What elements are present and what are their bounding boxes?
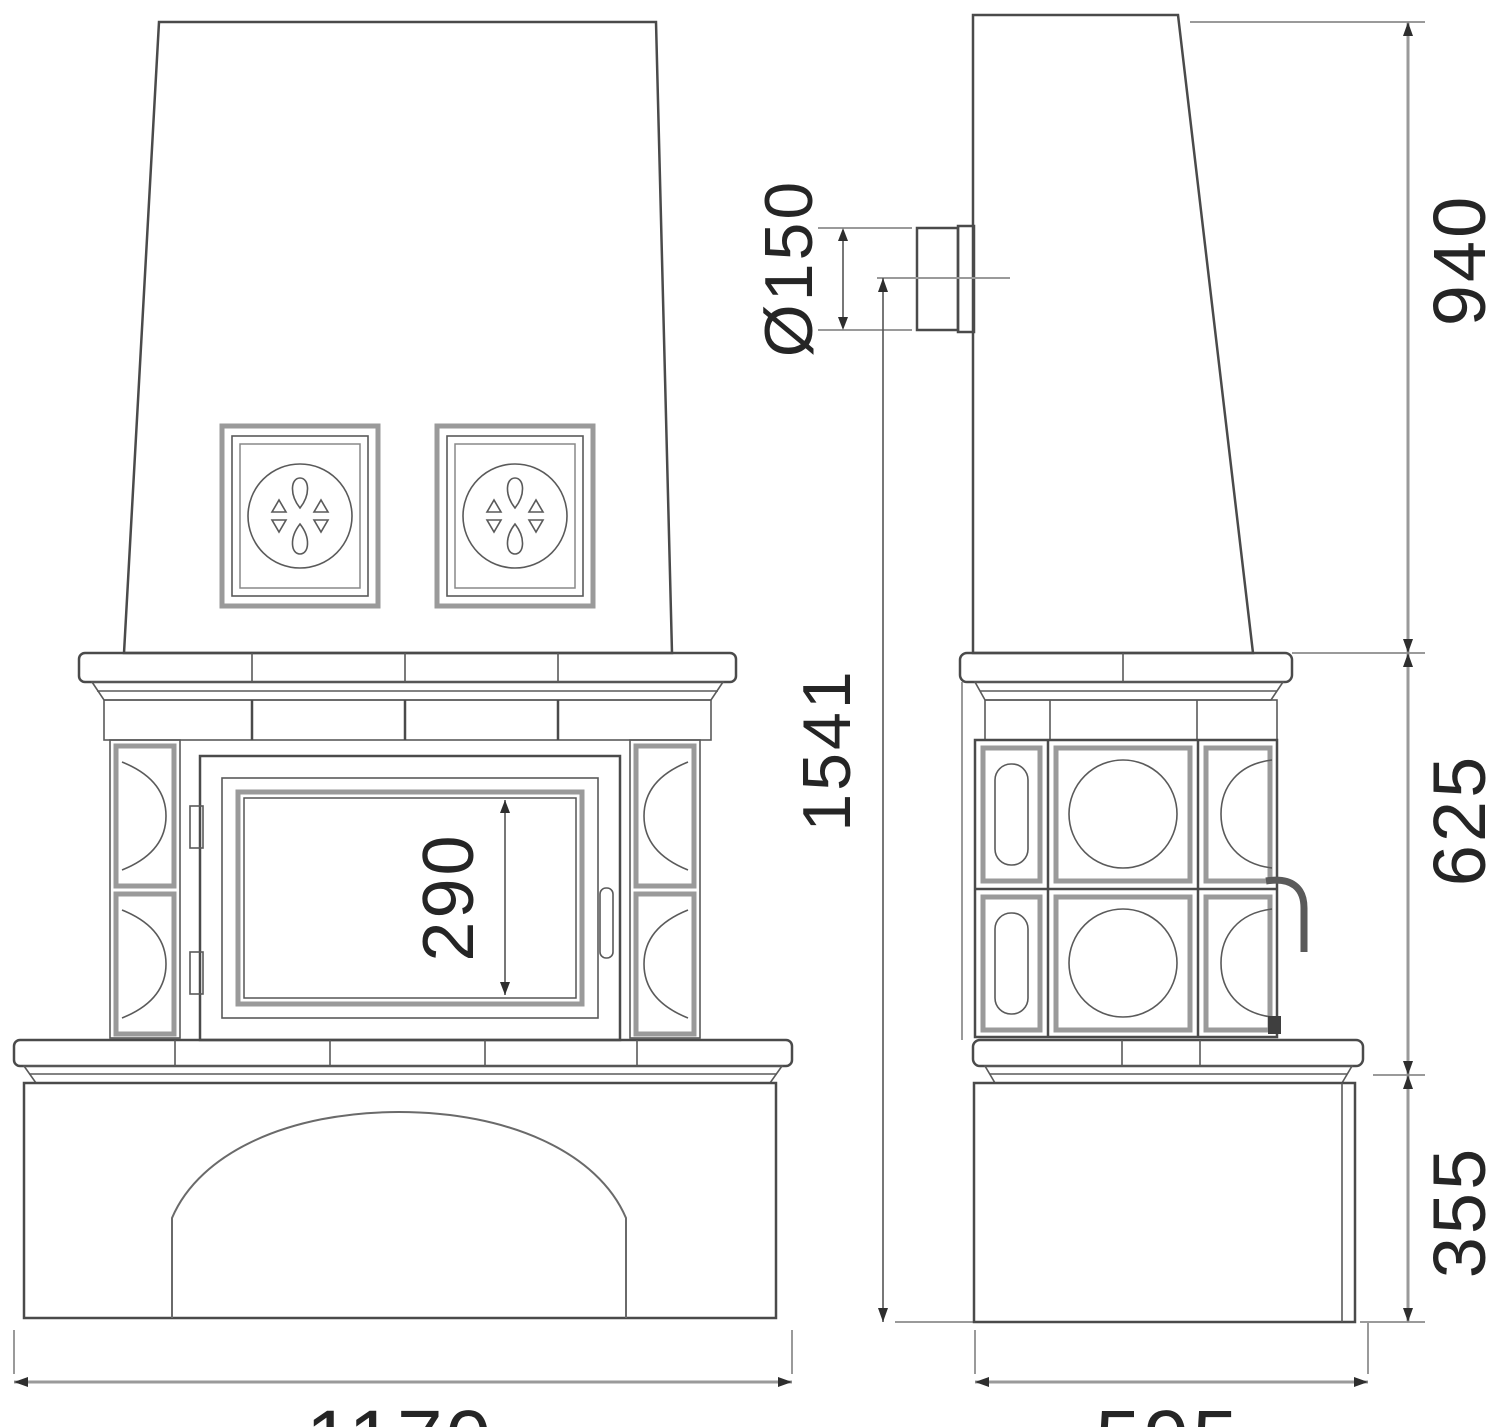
dim-flue-diameter: Ø150	[751, 179, 912, 357]
front-chimney-hood	[124, 22, 672, 653]
dim-chain-right: 940 625 355	[1190, 22, 1500, 1322]
flue-pipe	[877, 226, 1010, 332]
dim-label-upper-section: 940	[1418, 194, 1500, 326]
side-door-latch	[1268, 1016, 1281, 1034]
dim-label-base-height: 355	[1418, 1146, 1500, 1278]
base-arch	[172, 1112, 626, 1318]
side-tile-grid	[975, 740, 1304, 1037]
technical-drawing: 290 1170	[0, 0, 1500, 1427]
dim-side-depth: 595	[975, 1322, 1368, 1427]
dim-label-door-height: 290	[409, 832, 489, 961]
dim-label-side-depth: 595	[1095, 1394, 1241, 1427]
dim-label-flue-diameter: Ø150	[751, 179, 827, 357]
front-view: 290 1170	[14, 22, 792, 1427]
dim-label-middle-section: 625	[1418, 754, 1500, 886]
dim-label-overall-height: 1541	[789, 668, 865, 831]
front-left-tile-column	[110, 740, 180, 1038]
front-mantel-shelf	[79, 653, 736, 700]
side-mantel-shelf	[960, 653, 1292, 1040]
dim-front-width: 1170	[14, 1330, 792, 1427]
front-base	[24, 1083, 776, 1318]
front-right-tile-column	[630, 740, 700, 1038]
drawing-canvas: 290 1170	[0, 0, 1500, 1427]
side-view: Ø150 1541	[751, 15, 1500, 1427]
fire-door: 290	[190, 756, 620, 1040]
dim-overall-height: 1541	[789, 278, 974, 1322]
side-chimney-hood	[973, 15, 1253, 653]
decorative-tile-right	[437, 426, 593, 606]
side-base	[974, 1083, 1355, 1322]
front-crosshatch-frieze	[104, 700, 711, 740]
door-handle	[600, 888, 613, 958]
side-bench-shelf	[973, 1040, 1363, 1083]
dim-label-front-width: 1170	[306, 1394, 494, 1427]
side-frieze	[985, 700, 1277, 740]
decorative-tile-left	[222, 426, 378, 606]
front-bench-shelf	[14, 1040, 792, 1083]
